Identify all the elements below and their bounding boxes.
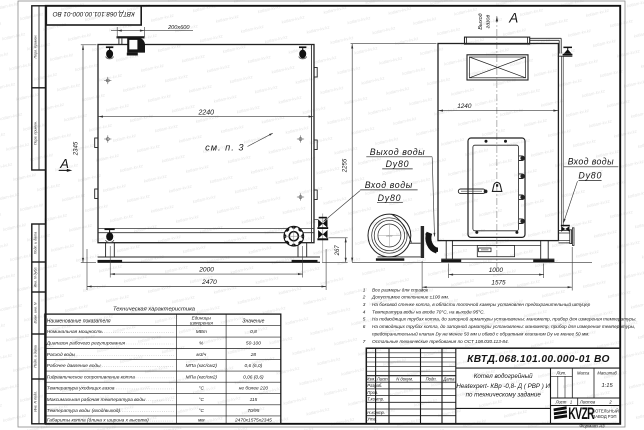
svg-text:0,6 (6,0): 0,6 (6,0) [244, 363, 262, 369]
svg-text:7: 7 [363, 339, 366, 344]
svg-text:°С: °С [199, 408, 205, 414]
svg-text:Расход воды: Расход воды [47, 352, 76, 358]
svg-text:Разраб.: Разраб. [367, 383, 382, 388]
svg-text:2345: 2345 [74, 141, 80, 156]
svg-text:Лист: Лист [555, 400, 567, 405]
svg-text:1240: 1240 [457, 103, 472, 110]
svg-text:КВТД.068.101.00.000-01 ВО: КВТД.068.101.00.000-01 ВО [467, 354, 610, 365]
svg-text:0,06 (0,6): 0,06 (0,6) [243, 374, 264, 380]
svg-text:Гидравлическое сопротивление к: Гидравлическое сопротивление котла [47, 374, 135, 380]
svg-text:200х600: 200х600 [167, 25, 190, 31]
svg-text:по техническому задание: по техническому задание [466, 392, 542, 399]
svg-text:Перв. примен.: Перв. примен. [34, 121, 38, 145]
svg-text:28: 28 [250, 352, 257, 358]
svg-text:предохранительный клапан Dу н: предохранительный клапан Dу не менее 50 … [372, 330, 590, 336]
svg-text:Диапазон рабочего регулировани: Диапазон рабочего регулирования [46, 341, 126, 347]
svg-text:Остальные технические требован: Остальные технические требования по ОСТ … [372, 339, 509, 344]
svg-text:Подп. и дата: Подп. и дата [34, 345, 38, 368]
svg-text:Вход воды: Вход воды [568, 157, 614, 167]
svg-text:Т.контр.: Т.контр. [367, 397, 384, 402]
svg-text:2470: 2470 [201, 279, 217, 286]
svg-text:Dy80: Dy80 [386, 159, 410, 169]
svg-text:50-100: 50-100 [246, 341, 261, 347]
svg-text:Выход воды: Выход воды [370, 147, 425, 157]
svg-text:Техническая характеристика: Техническая характеристика [113, 306, 196, 312]
svg-text:4: 4 [363, 309, 366, 314]
svg-text:Номинальная мощность: Номинальная мощность [47, 329, 104, 335]
svg-text:А: А [508, 10, 518, 25]
svg-text:Вход воды: Вход воды [365, 180, 413, 190]
svg-text:Дата: Дата [442, 377, 455, 382]
svg-text:267: 267 [335, 245, 341, 257]
svg-text:Выход: Выход [478, 13, 484, 29]
svg-text:Инв. N подл.: Инв. N подл. [34, 391, 38, 412]
svg-text:Листов: Листов [579, 400, 596, 405]
svg-text:м3/ч: м3/ч [196, 352, 206, 358]
svg-text:На боковой стенке котла, в обл: На боковой стенке котла, в области топоч… [372, 301, 591, 307]
svg-text:2240: 2240 [198, 109, 215, 116]
svg-text:2255: 2255 [342, 158, 348, 173]
svg-text:Лист: Лист [376, 377, 388, 382]
svg-text:МПа (кгс/см2): МПа (кгс/см2) [186, 374, 218, 380]
svg-text:1:15: 1:15 [601, 383, 613, 389]
svg-text:2470х1575х2345: 2470х1575х2345 [234, 418, 272, 424]
svg-text:см. п. 3: см. п. 3 [205, 142, 244, 152]
svg-text:Перв. примен.: Перв. примен. [34, 35, 38, 59]
svg-text:Dy80: Dy80 [578, 171, 602, 181]
svg-text:Рабочее давление воды: Рабочее давление воды [47, 363, 101, 369]
svg-text:Допустимое отклонение ±100 мм: Допустимое отклонение ±100 мм. [371, 295, 449, 300]
svg-text:Утв.: Утв. [367, 417, 377, 422]
svg-text:не более 220: не более 220 [239, 386, 269, 392]
svg-text:Масштаб: Масштаб [597, 370, 617, 375]
svg-text:Dy80: Dy80 [378, 193, 402, 203]
svg-text:На подводящих трубах котла,: На подводящих трубах котла, до запорной … [372, 316, 637, 322]
svg-text:Лит.: Лит. [555, 370, 566, 375]
svg-text:Температура уходящих газов: Температура уходящих газов [47, 386, 115, 392]
svg-text:°С: °С [199, 397, 205, 403]
svg-text:Наименование показателя: Наименование показателя [47, 319, 111, 325]
svg-text:1575: 1575 [491, 280, 506, 287]
svg-text:Изм.: Изм. [366, 377, 375, 382]
svg-text:Температура воды на входе 70°: Температура воды на входе 70°С, на выход… [372, 309, 485, 314]
svg-text:МПа (кгс/см2): МПа (кгс/см2) [186, 363, 218, 369]
svg-text:Подп.: Подп. [426, 377, 437, 382]
svg-text:2: 2 [362, 295, 366, 300]
svg-text:газов: газов [486, 14, 492, 28]
svg-text:Температура воды (вход/выход): Температура воды (вход/выход) [47, 408, 121, 414]
svg-text:115: 115 [250, 397, 258, 403]
svg-text:Все размеры для справок: Все размеры для справок [372, 287, 429, 292]
svg-text:°С: °С [199, 386, 205, 392]
svg-text:N докум.: N докум. [396, 377, 413, 382]
svg-text:Котел водогрейный: Котел водогрейный [474, 373, 533, 380]
svg-text:А: А [59, 156, 69, 171]
svg-text:МВт: МВт [196, 329, 207, 335]
svg-text:3: 3 [363, 302, 366, 307]
svg-text:1000: 1000 [489, 267, 504, 274]
svg-text:Heatexpert- КВр -0,8- Д ( РВР: Heatexpert- КВр -0,8- Д ( РВР ) И [456, 383, 550, 390]
svg-text:Подп. и дата: Подп. и дата [34, 232, 38, 255]
svg-text:Инв. N дубл.: Инв. N дубл. [34, 267, 38, 288]
svg-text:На отводящих трубах котла, до: На отводящих трубах котла, до запорной а… [372, 323, 635, 329]
svg-text:ЗАВОД РЭП: ЗАВОД РЭП [593, 414, 617, 419]
svg-text:6: 6 [363, 324, 366, 329]
svg-text:Взам. инв. N: Взам. инв. N [34, 302, 38, 323]
svg-text:измерения: измерения [190, 320, 214, 325]
svg-text:%: % [199, 341, 204, 347]
svg-text:KVZR: KVZR [568, 405, 594, 423]
svg-text:Пров.: Пров. [367, 390, 378, 395]
svg-text:Габариты котла (длина х ширина: Габариты котла (длина х ширина х высота) [47, 418, 149, 424]
svg-text:1: 1 [570, 400, 572, 405]
svg-text:5: 5 [363, 317, 366, 322]
svg-text:1: 1 [363, 287, 366, 292]
svg-text:КВТД.068.101.00.000-01 ВО: КВТД.068.101.00.000-01 ВО [53, 10, 135, 17]
svg-text:Максимальная рабочая температу: Максимальная рабочая температура воды [47, 397, 146, 403]
svg-text:2000: 2000 [198, 267, 214, 274]
svg-text:мм: мм [198, 419, 205, 424]
svg-text:70/95: 70/95 [247, 408, 259, 414]
svg-text:Масса: Масса [577, 370, 590, 375]
svg-text:Значение: Значение [242, 319, 264, 325]
svg-text:Формат А3: Формат А3 [579, 424, 605, 429]
svg-text:Н.контр.: Н.контр. [367, 410, 385, 415]
svg-text:0,8: 0,8 [250, 329, 257, 335]
